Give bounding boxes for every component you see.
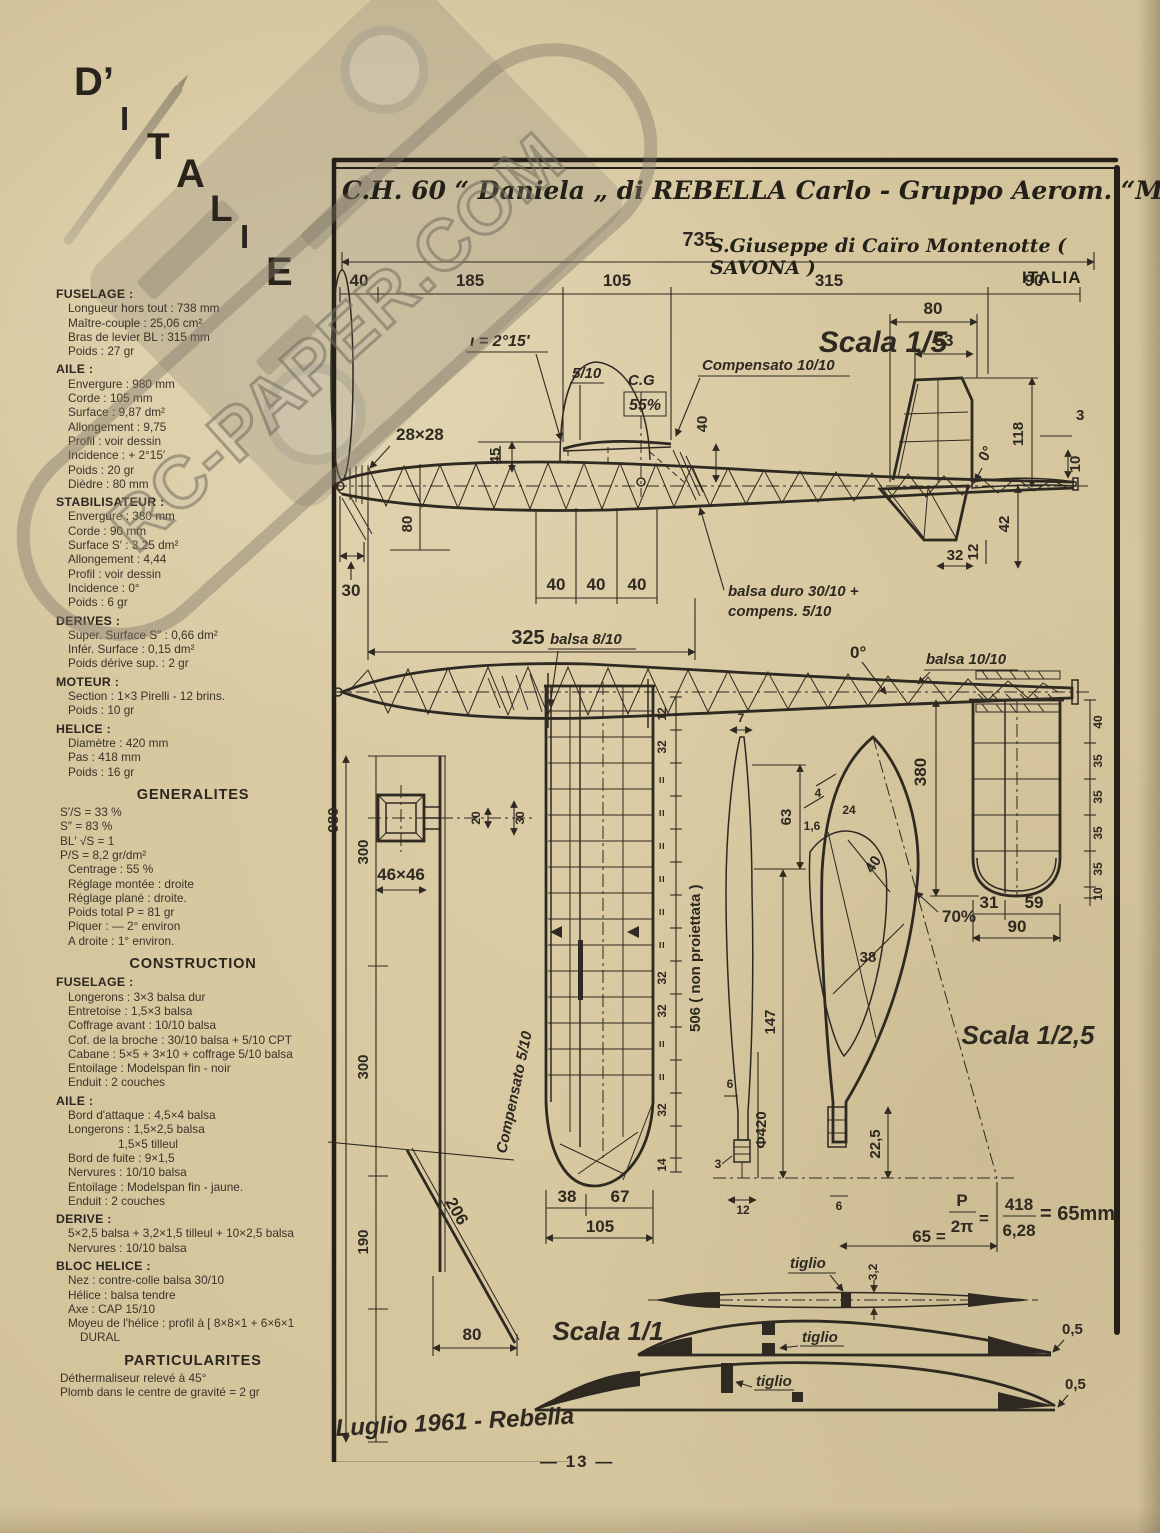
dim-0-5: 0,5 <box>1062 1321 1083 1338</box>
svg-text:40: 40 <box>1091 715 1105 729</box>
svg-text:=: = <box>655 809 669 816</box>
spec-line: Maître-couple : 25,06 cm² <box>56 316 330 330</box>
dim-185: 185 <box>456 271 484 290</box>
spec-line: CONSTRUCTION <box>56 957 330 971</box>
spec-line: S″ = 83 % <box>56 819 330 833</box>
spec-line: Allongement : 9,75 <box>56 420 330 434</box>
dim-980: 980 <box>328 807 342 832</box>
svg-text:35: 35 <box>1091 826 1105 840</box>
pylon-cross-section: 20 30 46×46 <box>368 785 533 890</box>
svg-text:35: 35 <box>1091 790 1105 804</box>
dim-3-2: 3,2 <box>866 1263 880 1280</box>
spec-line: BL′ √S = 1 <box>56 834 330 848</box>
dim-45: 45 <box>478 442 560 472</box>
svg-text:105: 105 <box>586 1217 614 1236</box>
spec-line: 5×2,5 balsa + 3,2×1,5 tilleul + 10×2,5 b… <box>56 1226 330 1240</box>
spec-line: Allongement : 4,44 <box>56 552 330 566</box>
svg-text:118: 118 <box>1010 422 1027 446</box>
masthead-letter: A <box>176 152 205 197</box>
svg-text:22,5: 22,5 <box>867 1129 884 1158</box>
svg-text:=: = <box>655 776 669 783</box>
balsa-8-10-label: balsa 8/10 <box>550 631 622 648</box>
covering-5-10-label: 5/10 <box>572 365 602 382</box>
transmitter-dial-icon <box>322 8 446 132</box>
spec-line: Pas : 418 mm <box>56 750 330 764</box>
svg-text:63: 63 <box>778 809 795 826</box>
paper-edge-shadow <box>1138 0 1160 1533</box>
spec-line: Poids : 20 gr <box>56 463 330 477</box>
spec-line: Moyeu de l'hélice : profil à [ 8×8×1 + 6… <box>56 1316 330 1345</box>
svg-text:3: 3 <box>1076 407 1084 424</box>
fin-side-view <box>893 378 972 482</box>
svg-text:40: 40 <box>694 416 711 433</box>
spec-line: BLOC HELICE : <box>56 1259 330 1273</box>
svg-text:32: 32 <box>655 971 669 985</box>
signature: Luglio 1961 - Rebella <box>335 1403 575 1442</box>
spec-line: Envergure : 980 mm <box>56 377 330 391</box>
svg-text:10: 10 <box>1067 456 1084 473</box>
spec-line: Surface S′ : 3,25 dm² <box>56 538 330 552</box>
tiglio-label: tiglio <box>790 1255 826 1272</box>
spec-line: Diamètre : 420 mm <box>56 736 330 750</box>
svg-text:147: 147 <box>762 1009 779 1034</box>
stab-planform: 380 40 35 35 35 35 10 31 59 90 <box>911 694 1105 942</box>
rib-spacing-chain: 12 32 = = = = = = 32 32 = = 32 14 506 ( … <box>655 697 704 1172</box>
svg-text:6: 6 <box>727 1077 734 1091</box>
spec-line: Coffrage avant : 10/10 balsa <box>56 1018 330 1032</box>
svg-text:80: 80 <box>463 1325 482 1344</box>
spec-line: Poids total P = 81 gr <box>56 905 330 919</box>
tiglio-label: tiglio <box>802 1329 838 1346</box>
dim-300b: 300 <box>355 1054 372 1079</box>
spec-line: FUSELAGE : <box>56 975 330 989</box>
svg-text:0°: 0° <box>975 443 997 464</box>
svg-text:325: 325 <box>511 627 544 649</box>
spec-line: Section : 1×3 Pirelli - 12 brins. <box>56 689 330 703</box>
spec-line: Profil : voir dessin <box>56 434 330 448</box>
spec-line: Longerons : 3×3 balsa dur <box>56 990 330 1004</box>
dim-40x3-chain: 40 40 40 <box>536 508 657 604</box>
spec-line: AILE : <box>56 362 330 376</box>
svg-text:59: 59 <box>1025 893 1044 912</box>
plan-country: ITALIA <box>1022 268 1082 288</box>
svg-text:418: 418 <box>1005 1195 1033 1214</box>
svg-text:32: 32 <box>655 1004 669 1018</box>
dim-40: 40 <box>350 271 369 290</box>
plan-drawing: 735 40 185 105 315 90 Scala 1/5 <box>328 152 1122 1462</box>
dim-300a: 300 <box>355 839 372 864</box>
svg-text:67: 67 <box>611 1187 630 1206</box>
svg-text:=: = <box>979 1209 989 1228</box>
svg-text:= 65mm: = 65mm <box>1040 1203 1115 1225</box>
svg-text:65 =: 65 = <box>912 1227 946 1246</box>
spec-line: Enduit : 2 couches <box>56 1194 330 1208</box>
propeller-views: Scala 1/2,5 7 63 6 3 12 Φ420 147 <box>713 711 1115 1252</box>
svg-text:45: 45 <box>487 448 504 465</box>
spec-line: HELICE : <box>56 722 330 736</box>
svg-text:3: 3 <box>715 1157 722 1171</box>
spec-line: Corde : 105 mm <box>56 391 330 405</box>
svg-text:=: = <box>655 1040 669 1047</box>
dim-46x46: 46×46 <box>377 865 425 884</box>
svg-text:14: 14 <box>655 1158 669 1172</box>
svg-text:30: 30 <box>342 581 361 600</box>
svg-text:32: 32 <box>947 547 964 564</box>
dim-30-nose: 30 <box>340 496 364 600</box>
spec-line: Longueur hors tout : 738 mm <box>56 301 330 315</box>
svg-text:10: 10 <box>1091 887 1105 901</box>
incidence-label: ι = 2°15′ <box>470 333 531 350</box>
spec-line: Piquer : — 2° environ <box>56 919 330 933</box>
spec-line: Incidence : 0° <box>56 581 330 595</box>
spec-line: Nervures : 10/10 balsa <box>56 1165 330 1179</box>
spec-line: Plomb dans le centre de gravité = 2 gr <box>56 1385 330 1399</box>
spec-line: A droite : 1° environ. <box>56 934 330 948</box>
svg-text:24: 24 <box>842 803 856 817</box>
spec-line: Cabane : 5×5 + 3×10 + coffrage 5/10 bals… <box>56 1047 330 1061</box>
svg-text:P: P <box>956 1191 967 1210</box>
dim-0-5: 0,5 <box>1065 1376 1086 1393</box>
masthead-letter: I <box>120 100 129 138</box>
compensato-10-10-label: Compensato 10/10 <box>702 357 835 374</box>
compens-5-10-label: compens. 5/10 <box>728 603 832 620</box>
svg-text:90: 90 <box>1008 917 1027 936</box>
cg-55-label: 55% <box>629 397 661 414</box>
dim-20: 20 <box>469 811 483 825</box>
svg-text:12: 12 <box>655 707 669 721</box>
spec-line: Centrage : 55 % <box>56 862 330 876</box>
spec-line: Cof. de la broche : 30/10 balsa + 5/10 C… <box>56 1033 330 1047</box>
paper-bottom-shadow <box>0 1507 1160 1533</box>
spec-line: Bras de levier BL : 315 mm <box>56 330 330 344</box>
svg-text:=: = <box>655 875 669 882</box>
dim-206: 206 <box>441 1194 472 1228</box>
svg-text:80: 80 <box>399 516 416 533</box>
spec-line: Entoilage : Modelspan fin - jaune. <box>56 1180 330 1194</box>
masthead-letter: I <box>240 218 249 256</box>
spec-line: Réglage plané : droite. <box>56 891 330 905</box>
balsa-10-10-label: balsa 10/10 <box>926 651 1007 668</box>
spec-line: Axe : CAP 15/10 <box>56 1302 330 1316</box>
stab-dims: 380 40 35 35 35 35 10 31 59 90 <box>911 700 1105 942</box>
pitch-formula: 65 = P 2π = 418 6,28 = 65mm <box>840 1182 1115 1252</box>
svg-text:6: 6 <box>836 1199 843 1213</box>
spec-line: Bord de fuite : 9×1,5 <box>56 1151 330 1165</box>
spec-line: Profil : voir dessin <box>56 567 330 581</box>
masthead-letter: E <box>266 250 293 295</box>
svg-text:40: 40 <box>547 575 566 594</box>
spec-line: MOTEUR : <box>56 675 330 689</box>
svg-text:=: = <box>655 1073 669 1080</box>
dim-30b: 30 <box>513 811 527 825</box>
spec-line: Réglage montée : droite <box>56 877 330 891</box>
spec-line: Incidence : + 2°15′ <box>56 448 330 462</box>
compensato-5-10-label: Compensato 5/10 <box>493 1029 536 1155</box>
spec-line: Dièdre : 80 mm <box>56 477 330 491</box>
spec-line: STABILISATEUR : <box>56 495 330 509</box>
masthead-letter: D’ <box>74 60 114 105</box>
side-view: Scala 1/5 ι = 2°15′ 5/10 <box>331 270 1088 660</box>
svg-text:31: 31 <box>980 893 999 912</box>
spec-line: Nez : contre-colle balsa 30/10 <box>56 1273 330 1287</box>
svg-text:40: 40 <box>628 575 647 594</box>
tiglio-label: tiglio <box>756 1373 792 1390</box>
dim-105: 105 <box>603 271 631 290</box>
full-size-sections: Scala 1/1 tiglio 3,2 tiglio 0,5 tiglio <box>535 1255 1086 1410</box>
spec-line: DERIVE : <box>56 1212 330 1226</box>
spec-line: Entoilage : Modelspan fin - noir <box>56 1061 330 1075</box>
spec-line: Poids : 16 gr <box>56 765 330 779</box>
spec-line: Infér. Surface : 0,15 dm² <box>56 642 330 656</box>
page-number: — 13 — <box>540 1452 614 1472</box>
svg-text:38: 38 <box>860 949 877 966</box>
svg-text:80: 80 <box>924 299 943 318</box>
wing-ribs <box>548 711 653 1075</box>
spec-line: Corde : 90 mm <box>56 524 330 538</box>
spec-line: Poids dérive sup. : 2 gr <box>56 656 330 670</box>
spec-line: Envergure : 380 mm <box>56 509 330 523</box>
scale-label-1-2-5: Scala 1/2,5 <box>962 1020 1096 1050</box>
spec-line: Surface : 9,87 dm² <box>56 405 330 419</box>
spec-line: Nervures : 10/10 balsa <box>56 1241 330 1255</box>
dim-190: 190 <box>355 1229 372 1254</box>
spec-line: 1,5×5 tilleul <box>56 1137 330 1151</box>
svg-text:6,28: 6,28 <box>1002 1221 1035 1240</box>
svg-text:38: 38 <box>558 1187 577 1206</box>
spec-line: DERIVES : <box>56 614 330 628</box>
spec-line: Entretoise : 1,5×3 balsa <box>56 1004 330 1018</box>
spec-line: Super. Surface S″ : 0,66 dm² <box>56 628 330 642</box>
blade-a-dims: 7 63 6 3 12 Φ420 147 <box>715 711 806 1217</box>
plan-view: balsa 8/10 0° balsa 10/10 <box>332 631 1090 728</box>
wing-mount-hatch <box>488 674 542 712</box>
svg-text:1,6: 1,6 <box>804 819 821 833</box>
balsa-duro-label: balsa duro 30/10 + <box>728 583 859 600</box>
svg-text:=: = <box>655 842 669 849</box>
plan-title: C.H. 60 “ Daniela „ di REBELLA Carlo - G… <box>342 176 1118 205</box>
wing-chord-dims: 38 67 105 <box>546 1187 653 1244</box>
svg-text:35: 35 <box>1091 862 1105 876</box>
plan-subtitle: S.Giuseppe di Caïro Montenotte ( SAVONA … <box>710 235 1160 279</box>
masthead-letter: L <box>210 188 233 230</box>
spec-line: GENERALITES <box>56 788 330 802</box>
svg-text:42: 42 <box>996 516 1013 533</box>
pct-70-label: 70% <box>942 907 976 926</box>
spec-line: Hélice : balsa tendre <box>56 1288 330 1302</box>
svg-text:40: 40 <box>587 575 606 594</box>
dim-40-wing-te: 40 <box>694 416 716 482</box>
svg-text:7: 7 <box>738 711 745 725</box>
svg-text:380: 380 <box>911 758 930 786</box>
svg-text:Φ420: Φ420 <box>753 1111 770 1148</box>
cg-label: C.G <box>628 372 655 389</box>
wing-planform: Compensato 5/10 38 67 105 <box>328 682 704 1244</box>
dim-506-label: 506 ( non proiettata ) <box>687 884 704 1032</box>
svg-text:35: 35 <box>1091 754 1105 768</box>
wing-front-view: 980 300 300 190 206 80 <box>328 756 533 1442</box>
spec-line: Poids : 10 gr <box>56 703 330 717</box>
svg-text:2π: 2π <box>951 1217 973 1236</box>
svg-text:12: 12 <box>965 544 982 561</box>
svg-text:12: 12 <box>736 1203 750 1217</box>
dim-28x28: 28×28 <box>396 425 444 444</box>
spec-line: Poids : 27 gr <box>56 344 330 358</box>
deg0-plan-label: 0° <box>850 643 866 662</box>
svg-text:32: 32 <box>655 740 669 754</box>
svg-text:53: 53 <box>935 331 954 350</box>
spec-line: S′/S = 33 % <box>56 805 330 819</box>
spec-line: Longerons : 1,5×2,5 balsa <box>56 1122 330 1136</box>
drawing-frame <box>334 160 1117 1462</box>
spec-line: PARTICULARITES <box>56 1354 330 1368</box>
spec-line: Déthermaliseur relevé à 45° <box>56 1371 330 1385</box>
scale-label-1-1: Scala 1/1 <box>552 1316 663 1346</box>
masthead-letter: T <box>147 126 170 168</box>
spec-line: Poids : 6 gr <box>56 595 330 609</box>
spec-line: Enduit : 2 couches <box>56 1075 330 1089</box>
specs-sidebar: FUSELAGE :Longueur hors tout : 738 mmMaî… <box>56 283 330 1400</box>
spec-line: AILE : <box>56 1094 330 1108</box>
spec-line: Bord d'attaque : 4,5×4 balsa <box>56 1108 330 1122</box>
svg-text:=: = <box>655 941 669 948</box>
spec-line: P/S = 8,2 gr/dm² <box>56 848 330 862</box>
svg-text:32: 32 <box>655 1103 669 1117</box>
svg-text:=: = <box>655 908 669 915</box>
dim-80-dihedral: 80 <box>433 1276 517 1356</box>
